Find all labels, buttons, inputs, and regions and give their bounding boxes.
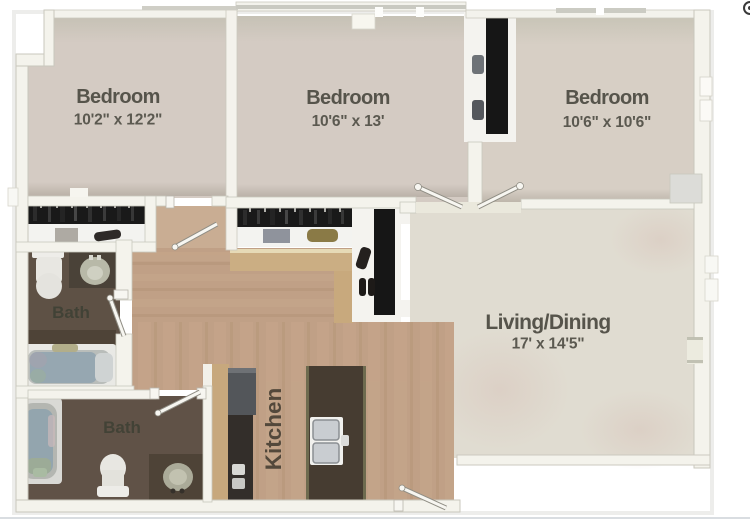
svg-text:Bedroom: Bedroom <box>76 86 160 108</box>
svg-text:Bath: Bath <box>52 303 90 322</box>
svg-text:Living/Dining: Living/Dining <box>485 311 610 334</box>
svg-text:Bedroom: Bedroom <box>565 87 649 109</box>
svg-text:10'6" x 10'6": 10'6" x 10'6" <box>563 114 651 131</box>
svg-text:Bath: Bath <box>103 418 141 437</box>
svg-text:10'6" x 13': 10'6" x 13' <box>312 113 385 130</box>
svg-text:10'2" x 12'2": 10'2" x 12'2" <box>74 112 162 129</box>
svg-text:Bedroom: Bedroom <box>306 87 390 109</box>
svg-text:Kitchen: Kitchen <box>261 388 286 471</box>
svg-text:17' x 14'5": 17' x 14'5" <box>512 336 585 353</box>
